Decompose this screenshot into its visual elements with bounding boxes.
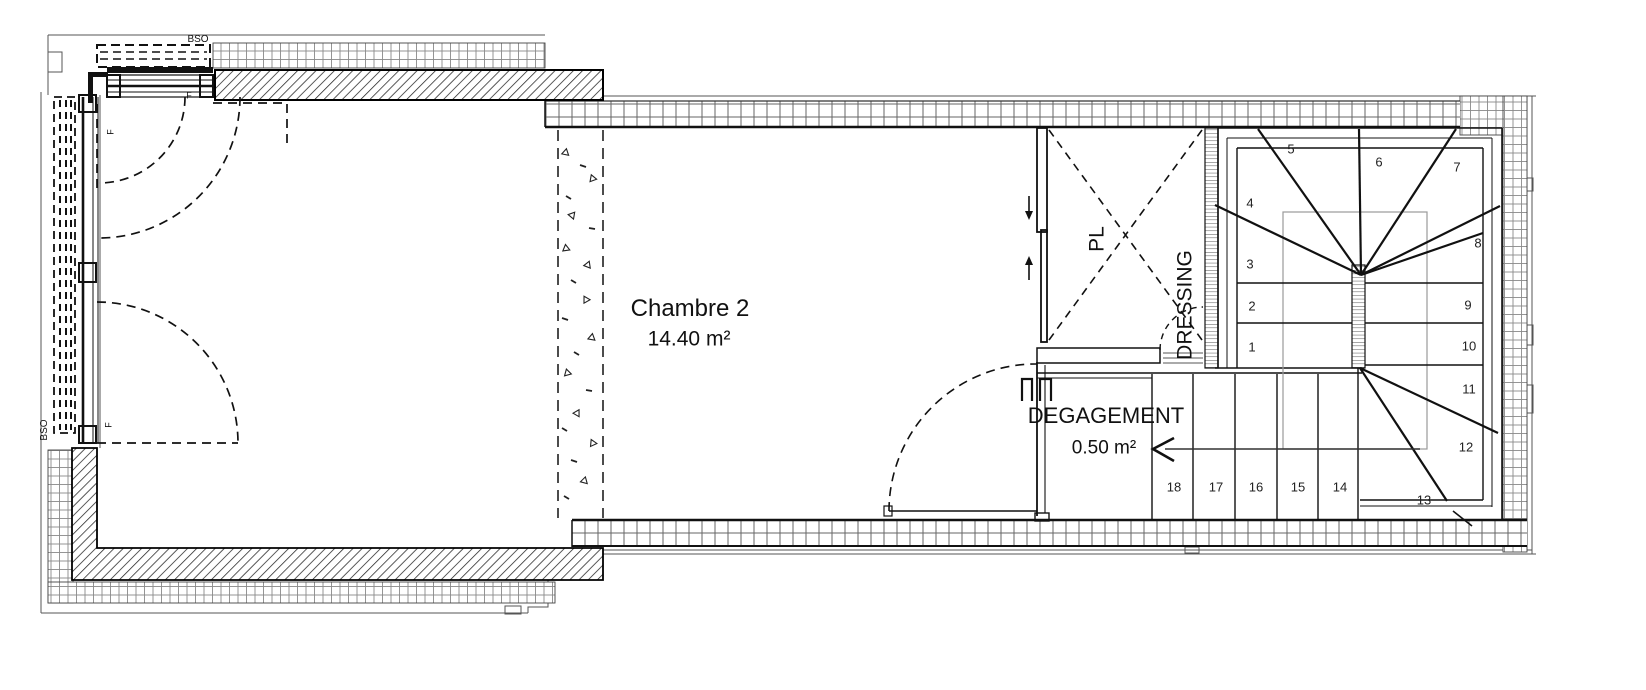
window-label-f-left-upper: F <box>107 129 116 135</box>
window-top-left <box>88 45 213 103</box>
door-frame-mark-left <box>1022 379 1032 401</box>
wall-below-closet <box>1037 348 1160 363</box>
degagement-door <box>884 362 1051 521</box>
room-area-degagement: 0.50 m² <box>1072 439 1136 458</box>
stair-step-number-3: 3 <box>1246 258 1253 271</box>
window-swing-arcs <box>97 97 287 443</box>
stair-step-number-13: 13 <box>1417 494 1431 507</box>
stair-step-number-10: 10 <box>1462 340 1476 353</box>
stair-step-number-15: 15 <box>1291 481 1305 494</box>
dressing-stair-wall <box>1205 128 1218 368</box>
window-left <box>54 95 100 448</box>
stair-newel-spine <box>1352 265 1365 368</box>
bso-label-top: BSO <box>187 35 208 45</box>
aggregate-marks <box>562 148 597 499</box>
hatched-walls <box>72 70 603 580</box>
hatched-wall-top <box>215 70 603 100</box>
concrete-strip <box>558 130 603 518</box>
hatched-wall-bottom-left <box>72 448 603 580</box>
room-label-chambre2: Chambre 2 <box>631 297 750 321</box>
window-label-f-top: F <box>186 92 192 101</box>
stair-step-number-6: 6 <box>1375 156 1382 169</box>
stair-step-number-17: 17 <box>1209 481 1223 494</box>
stair-step-number-12: 12 <box>1459 441 1473 454</box>
door-swing-arc <box>889 364 1037 511</box>
stair-step-number-2: 2 <box>1248 300 1255 313</box>
room-label-degagement: DEGAGEMENT <box>1028 405 1184 427</box>
stair-step-number-18: 18 <box>1167 481 1181 494</box>
sliding-door-panel-upper <box>1037 128 1047 232</box>
stair-step-number-11: 11 <box>1462 383 1476 396</box>
floor-plan: Chambre 2 14.40 m² DEGAGEMENT 0.50 m² PL… <box>0 0 1646 690</box>
room-label-dressing: DRESSING <box>1175 250 1196 360</box>
bso-label-left: BSO <box>40 419 50 440</box>
window-label-f-left-lower: F <box>105 422 114 428</box>
sliding-direction-arrows <box>1025 196 1033 280</box>
staircase <box>1037 128 1502 526</box>
floor-plan-drawing <box>0 0 1646 690</box>
closet-label-pl: PL <box>1087 226 1108 252</box>
room-area-chambre2: 14.40 m² <box>648 329 731 350</box>
stair-step-number-14: 14 <box>1333 481 1347 494</box>
sliding-door-panel-lower <box>1041 230 1047 342</box>
stair-step-number-7: 7 <box>1453 161 1460 174</box>
stair-step-number-16: 16 <box>1249 481 1263 494</box>
stair-step-number-4: 4 <box>1246 197 1253 210</box>
stair-step-number-1: 1 <box>1248 341 1255 354</box>
stair-step-number-5: 5 <box>1287 143 1294 156</box>
stair-step-number-9: 9 <box>1464 299 1471 312</box>
bso-blind-box-top <box>97 45 210 67</box>
stair-step-number-8: 8 <box>1474 237 1481 250</box>
